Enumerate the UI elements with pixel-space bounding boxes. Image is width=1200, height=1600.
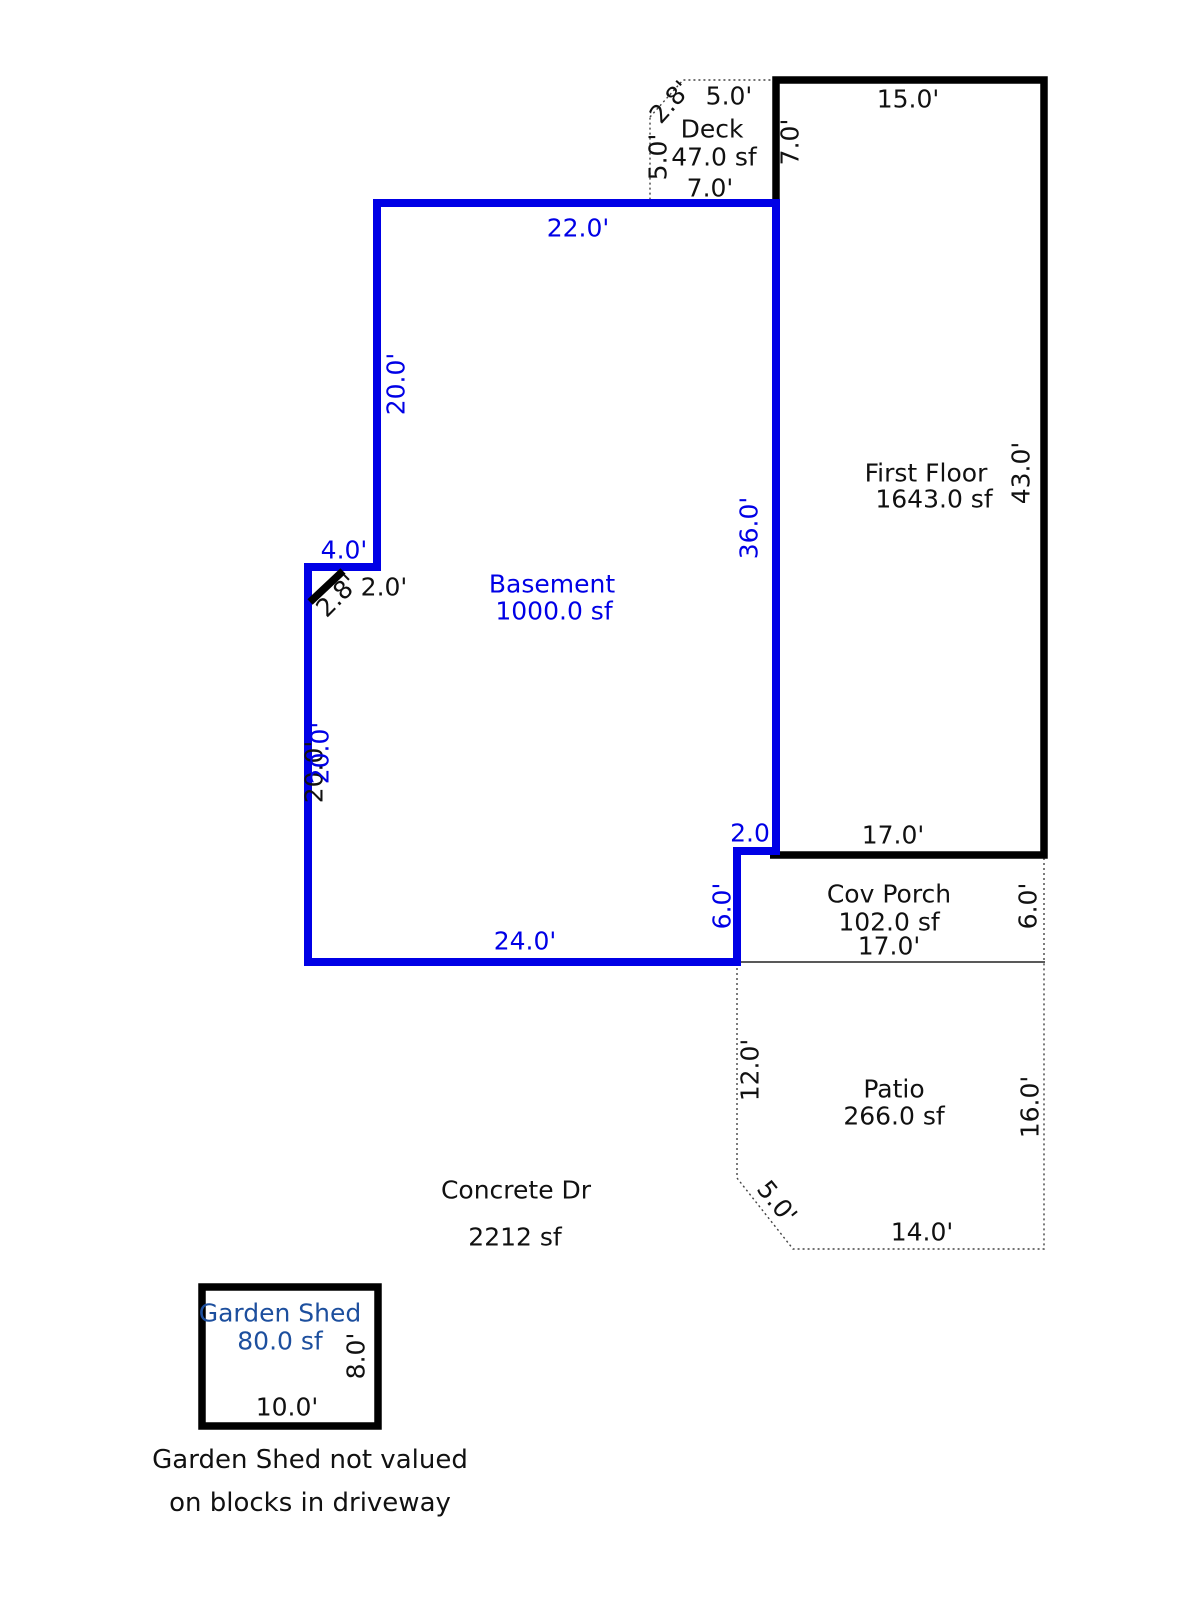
basement-label: Basement bbox=[489, 570, 615, 599]
basement-dim-notch: 4.0' bbox=[321, 536, 368, 565]
deck-dim-top: 5.0' bbox=[706, 82, 753, 111]
basement-dim-top: 22.0' bbox=[547, 214, 610, 243]
garden-shed-label: Garden Shed bbox=[199, 1299, 362, 1328]
deck-dim-left: 5.0' bbox=[644, 134, 673, 181]
cov-porch-dim-bottom: 17.0' bbox=[858, 932, 921, 961]
cov-porch-dim-right: 6.0' bbox=[1014, 883, 1043, 930]
first-floor-label: First Floor bbox=[865, 459, 988, 488]
patio-label: Patio bbox=[863, 1075, 924, 1104]
basement-dim-right: 36.0' bbox=[735, 497, 764, 560]
floorplan-svg: 2.8' 5.0' 5.0' Deck 47.0 sf 7.0' 15.0' 7… bbox=[0, 0, 1200, 1600]
garden-shed-dim-right: 8.0' bbox=[342, 1333, 371, 1380]
basement-dim-bottom: 24.0' bbox=[494, 927, 557, 956]
patio-dim-right: 16.0' bbox=[1016, 1076, 1045, 1139]
first-floor-dim-top: 15.0' bbox=[877, 85, 940, 114]
first-floor-dim-notch: 2.0' bbox=[361, 573, 408, 602]
garden-shed-area: 80.0 sf bbox=[237, 1327, 324, 1356]
first-floor-dim-bottom: 17.0' bbox=[862, 821, 925, 850]
note-line1: Garden Shed not valued bbox=[152, 1445, 468, 1475]
patio-area: 266.0 sf bbox=[843, 1102, 946, 1131]
cov-porch-label: Cov Porch bbox=[827, 880, 951, 909]
note-line2: on blocks in driveway bbox=[169, 1488, 451, 1518]
basement-dim-upper-left: 20.0' bbox=[382, 353, 411, 416]
basement-dim-step-width: 2.0 bbox=[730, 819, 770, 848]
first-floor-dim-right: 43.0' bbox=[1007, 442, 1036, 505]
garden-shed-dim-bottom: 10.0' bbox=[256, 1393, 319, 1422]
concrete-drive-label: Concrete Dr bbox=[441, 1176, 592, 1205]
concrete-drive-area: 2212 sf bbox=[468, 1223, 563, 1252]
first-floor-area: 1643.0 sf bbox=[875, 485, 993, 514]
basement-area: 1000.0 sf bbox=[495, 597, 613, 626]
basement-dim-step-height: 6.0' bbox=[708, 883, 737, 930]
first-floor-dim-upper-left: 7.0' bbox=[776, 119, 805, 166]
basement-dim-lower-left: 20.0' bbox=[306, 722, 335, 785]
patio-dim-left: 12.0' bbox=[736, 1039, 765, 1102]
deck-dim-bottom: 7.0' bbox=[687, 174, 734, 203]
patio-dim-bottom: 14.0' bbox=[891, 1218, 954, 1247]
deck-area: 47.0 sf bbox=[671, 143, 758, 172]
floorplan-sketch: 2.8' 5.0' 5.0' Deck 47.0 sf 7.0' 15.0' 7… bbox=[0, 0, 1200, 1600]
deck-label: Deck bbox=[681, 115, 744, 144]
